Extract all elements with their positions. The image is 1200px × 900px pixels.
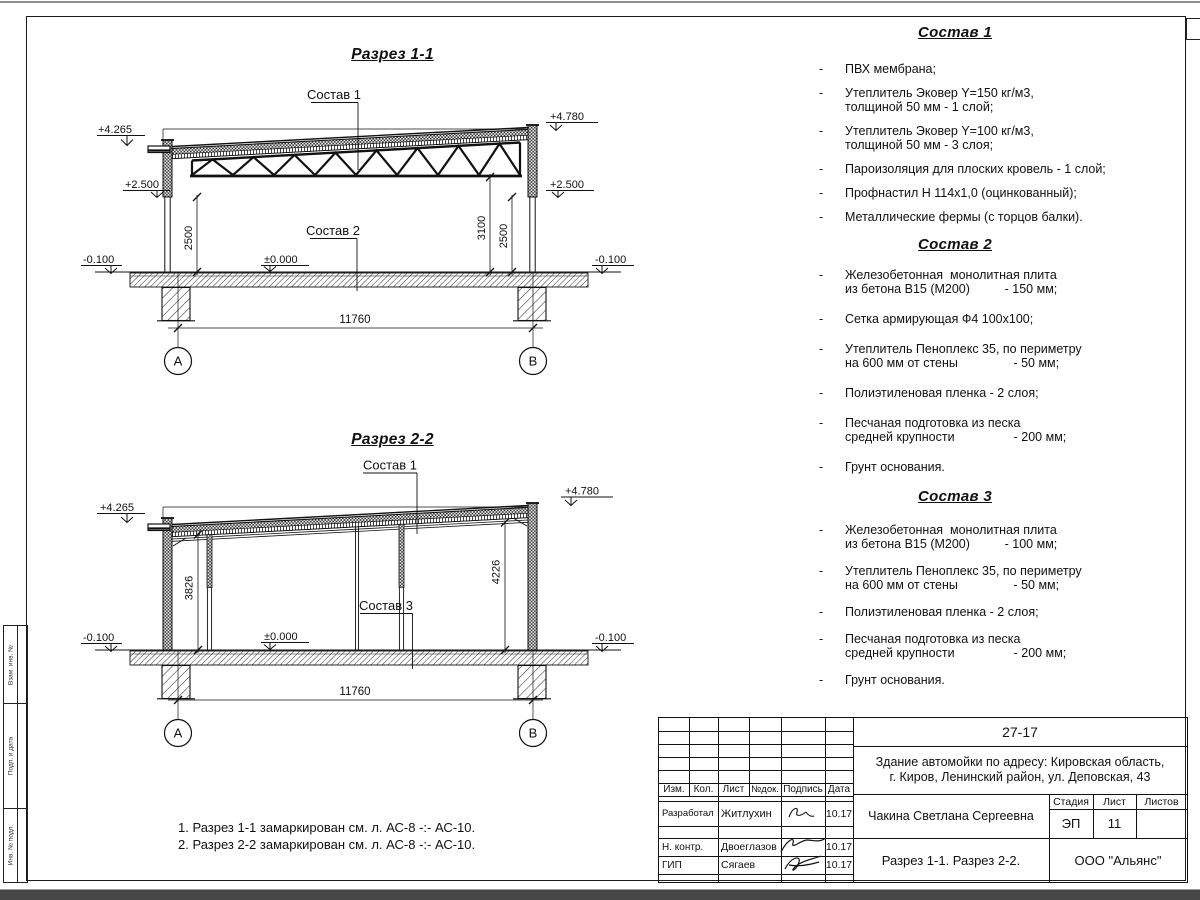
frame-corner-box [1186,18,1200,40]
bullet-dash: - [819,605,823,619]
composition-item: -Сетка армирующая Ф4 100х100; [795,312,1115,326]
side-stamp-box: Инв. № подл. [4,808,27,881]
roof-assembly [163,127,537,159]
bullet-dash: - [819,564,823,578]
bullet-dash: - [819,386,823,400]
tb-name: Сягаев [721,856,781,874]
composition-item: -Полиэтиленовая пленка - 2 слоя; [795,605,1115,619]
elevation-value: ±0.000 [264,631,298,643]
bullet-dash: - [819,210,823,224]
composition-item-line: -Песчаная подготовка из песка [845,416,1115,430]
composition-item-line: -Утеплитель Эковер Y=150 кг/м3, [845,86,1115,100]
floor-slab [95,650,621,665]
title-block: Изм. Кол. Лист №док. Подпись Дата Разраб… [658,717,1188,883]
composition-item: -Полиэтиленовая пленка - 2 слоя; [795,386,1115,400]
elevation-value: -0.100 [83,254,114,266]
composition-item-line: из бетона В15 (М200) - 150 мм; [845,282,1115,296]
tb-line [659,744,853,745]
section-1-1-drawing [81,103,634,375]
tb-date: 10.17 [825,801,853,826]
callout-leaders [310,103,358,292]
dimension-value: 2500 [183,226,195,250]
composition-2-list: -Железобетонная монолитная плитаиз бетон… [795,268,1115,474]
dimension-value: 4226 [491,560,503,584]
bullet-dash: - [819,186,823,200]
tb-sheets-value [1136,809,1187,838]
tb-col-data: Дата [825,783,853,796]
composition-item: -ПВХ мембрана; [795,62,1115,76]
dimension-value: 2500 [498,224,510,248]
composition-item-line: -Полиэтиленовая пленка - 2 слоя; [845,386,1115,400]
side-stamp-label: Инв. № подл. [4,808,17,881]
right-wall [526,125,539,272]
composition-2-block: Состав 2 -Железобетонная монолитная плит… [795,236,1115,490]
composition-item: -Утеплитель Эковер Y=100 кг/м3,толщиной … [795,124,1115,152]
composition-3-list: -Железобетонная монолитная плитаиз бетон… [795,523,1115,687]
composition-item-line: -Профнастил Н 114х1,0 (оцинкованный); [845,186,1115,200]
composition-item-line: -Сетка армирующая Ф4 100х100; [845,312,1115,326]
tb-role: ГИП [662,856,717,874]
floor-slab [95,272,621,287]
tb-doc-number: 27-17 [853,718,1187,746]
elevation-value: -0.100 [595,632,626,644]
bullet-dash: - [819,460,823,474]
tb-sheet-title: Разрез 1-1. Разрез 2-2. [853,838,1049,882]
composition-1-list: -ПВХ мембрана;-Утеплитель Эковер Y=150 к… [795,62,1115,224]
composition-item: -Железобетонная монолитная плитаиз бетон… [795,523,1115,551]
side-stamp-box: Подп. и дата [4,703,27,809]
bullet-dash: - [819,86,823,100]
side-stamp-box: Взам. инв. № [4,626,27,704]
right-wall [526,503,539,650]
tb-date: 10.17 [825,856,853,874]
composition-item-line: средней крупности - 200 мм; [845,430,1115,444]
elevation-mark [261,266,309,272]
callout-leaders [360,473,417,669]
bullet-dash: - [819,342,823,356]
axis-letter-b: В [529,726,538,741]
signature [783,803,823,824]
composition-item-line: -Утеплитель Пеноплекс 35, по периметру [845,564,1115,578]
composition-item-line: -Грунт основания. [845,673,1115,687]
tb-object-line2: г. Киров, Ленинский район, ул. Деповская… [876,770,1165,785]
tb-col-list: Лист [718,783,749,796]
composition-item-line: -ПВХ мембрана; [845,62,1115,76]
side-stamp-label: Подп. и дата [4,703,17,808]
composition-item: -Профнастил Н 114х1,0 (оцинкованный); [795,186,1115,200]
elevation-mark [546,191,594,198]
composition-item: -Утеплитель Эковер Y=150 кг/м3,толщиной … [795,86,1115,114]
elevation-value: +2.500 [550,179,584,191]
composition-item-line: -Металлические фермы (с торцов балки). [845,210,1115,224]
callout-sostav1: Состав 1 [307,87,361,102]
interior-columns [207,524,404,650]
elevation-mark [97,514,145,523]
canopy [148,524,170,531]
composition-item-line: на 600 мм от стены - 50 мм; [845,578,1115,592]
notes: 1. Разрез 1-1 замаркирован см. л. АС-8 -… [178,820,475,853]
composition-item-line: -Полиэтиленовая пленка - 2 слоя; [845,605,1115,619]
tb-author: Чакина Светлана Сергеевна [853,794,1049,838]
canopy [148,146,170,153]
tb-sheet-value: 11 [1093,809,1136,838]
tb-col-podpis: Подпись [781,783,825,796]
elevation-value: +4.780 [565,486,599,498]
tb-role: Н. контр. [662,838,717,856]
tb-stage-value: ЭП [1049,809,1093,838]
side-stamp-divider [17,626,18,882]
bullet-dash: - [819,162,823,176]
tb-col-izm: Изм. [659,783,689,796]
bullet-dash: - [819,62,823,76]
span-dimension: 11760 [339,314,370,326]
callout-sostav1: Состав 1 [363,458,417,473]
composition-item: -Песчаная подготовка из пескасредней кру… [795,632,1115,660]
tb-line [659,826,853,827]
tb-line [659,770,853,771]
elevation-mark [546,123,598,131]
composition-item-line: толщиной 50 мм - 3 слоя; [845,138,1115,152]
axis-letter-a: А [174,354,183,369]
composition-2-heading: Состав 2 [795,236,1115,252]
vertical-dimensions [194,519,509,655]
tb-line [659,757,853,758]
note-line: 2. Разрез 2-2 замаркирован см. л. АС-8 -… [178,837,475,854]
drawing-sheet: Взам. инв. № Подп. и дата Инв. № подл. [0,0,1200,900]
callout-sostav2: Состав 2 [306,223,360,238]
composition-item: -Металлические фермы (с торцов балки). [795,210,1115,224]
tb-col-ndok: №док. [749,783,781,796]
elevation-mark [561,497,613,506]
composition-item: -Утеплитель Пеноплекс 35, по периметруна… [795,564,1115,592]
callout-sostav3: Состав 3 [359,598,413,613]
tb-object-line1: Здание автомойки по адресу: Кировская об… [876,755,1165,770]
note-line: 1. Разрез 1-1 замаркирован см. л. АС-8 -… [178,820,475,837]
axis-letter-a: А [174,726,183,741]
left-wall [161,518,174,650]
scan-artifact-bottom [0,889,1200,900]
elevation-value: +4.265 [100,502,134,514]
composition-item: -Утеплитель Пеноплекс 35, по периметруна… [795,342,1115,370]
dimension-value: 3826 [184,576,196,600]
elevation-value: +4.265 [98,124,132,136]
tb-date: 10.17 [825,838,853,856]
composition-item-line: -Железобетонная монолитная плита [845,268,1115,282]
side-stamp-column: Взам. инв. № Подп. и дата Инв. № подл. [3,625,28,883]
composition-item: -Грунт основания. [795,673,1115,687]
tb-name: Двоеглазов [721,838,781,856]
composition-3-heading: Состав 3 [795,488,1115,504]
side-stamp-label: Взам. инв. № [4,626,17,703]
composition-item: -Грунт основания. [795,460,1115,474]
section-1-1-svg: Состав 1 Состав 2 +4.265 +4.780 +2.500 +… [78,42,640,380]
bullet-dash: - [819,632,823,646]
composition-item-line: средней крупности - 200 мм; [845,646,1115,660]
tb-col-kol: Кол. [689,783,718,796]
composition-item-line: на 600 мм от стены - 50 мм; [845,356,1115,370]
elevation-mark [97,136,145,146]
bullet-dash: - [819,416,823,430]
tb-line [718,718,719,882]
elevation-value: -0.100 [595,254,626,266]
composition-item: -Железобетонная монолитная плитаиз бетон… [795,268,1115,296]
bullet-dash: - [819,312,823,326]
dimension-value: 3100 [476,216,488,240]
tb-object: Здание автомойки по адресу: Кировская об… [853,746,1187,794]
scan-artifact-top [0,1,1200,3]
tb-name: Житлухин [721,801,780,826]
composition-3-block: Состав 3 -Железобетонная монолитная плит… [795,488,1115,700]
composition-item: -Пароизоляция для плоских кровель - 1 сл… [795,162,1115,176]
section-2-2-svg: Состав 1 Состав 3 +4.265 +4.780 -0.100 -… [78,420,640,752]
span-dimension: 11760 [339,686,370,698]
elevation-mark [261,643,309,650]
composition-1-block: Состав 1 -ПВХ мембрана;-Утеплитель Экове… [795,24,1115,234]
elevation-value: +4.780 [550,111,584,123]
left-wall [161,140,174,272]
composition-item-line: -Песчаная подготовка из песка [845,632,1115,646]
bullet-dash: - [819,673,823,687]
tb-line [659,731,853,732]
composition-item-line: -Утеплитель Пеноплекс 35, по периметру [845,342,1115,356]
roof-assembly [163,505,537,546]
composition-item: -Песчаная подготовка из пескасредней кру… [795,416,1115,444]
section-2-2-drawing [81,473,634,747]
composition-item-line: толщиной 50 мм - 1 слой; [845,100,1115,114]
tb-sheets-label: Листов [1136,794,1187,809]
tb-sheet-label: Лист [1093,794,1136,809]
composition-item-line: из бетона В15 (М200) - 100 мм; [845,537,1115,551]
bullet-dash: - [819,124,823,138]
composition-item-line: -Утеплитель Эковер Y=100 кг/м3, [845,124,1115,138]
tb-role: Разработал [662,801,717,826]
composition-item-line: -Пароизоляция для плоских кровель - 1 сл… [845,162,1115,176]
bullet-dash: - [819,268,823,282]
tb-company: ООО "Альянс" [1049,838,1187,882]
signature [779,853,827,877]
axis-letter-b: В [529,354,538,369]
elevation-value: +2.500 [125,179,159,191]
tb-stage-label: Стадия [1049,794,1093,809]
bullet-dash: - [819,523,823,537]
elevation-value: -0.100 [83,632,114,644]
composition-item-line: -Грунт основания. [845,460,1115,474]
elevation-value: ±0.000 [264,254,298,266]
tb-line [659,796,853,797]
composition-1-heading: Состав 1 [795,24,1115,40]
composition-item-line: -Железобетонная монолитная плита [845,523,1115,537]
